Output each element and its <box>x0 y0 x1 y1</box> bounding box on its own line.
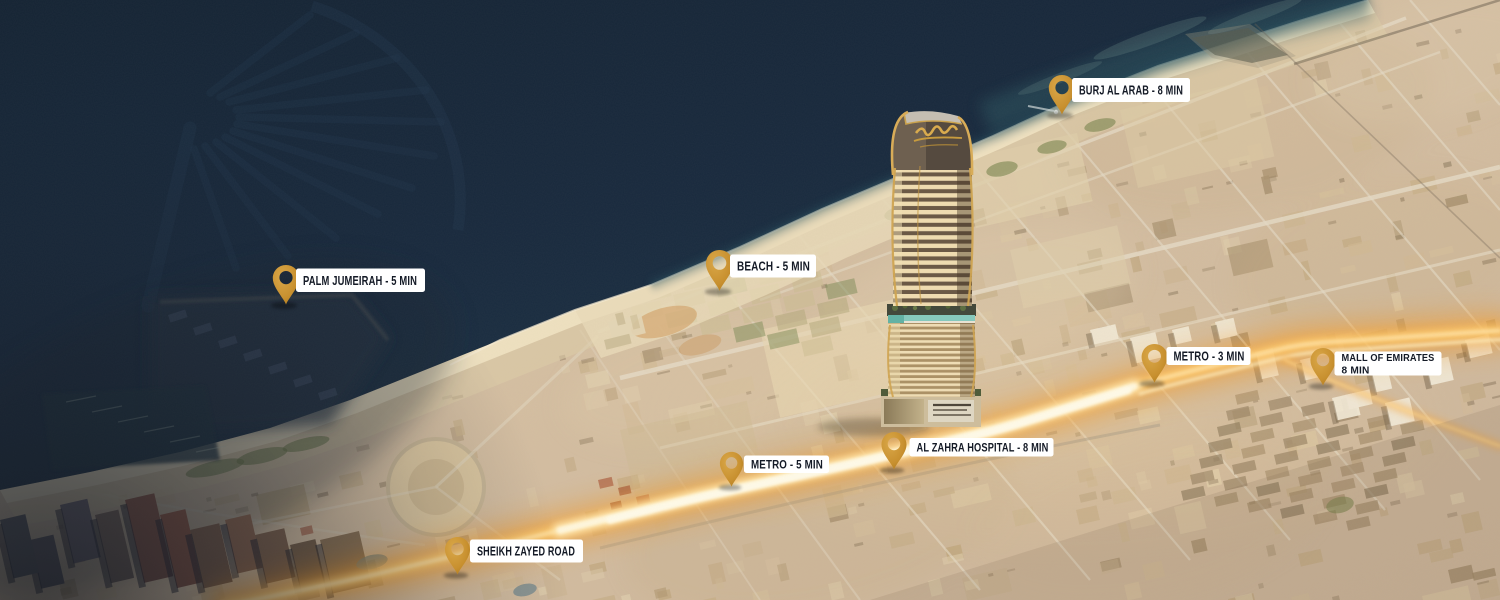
svg-text:AL ZAHRA HOSPITAL - 8 MIN: AL ZAHRA HOSPITAL - 8 MIN <box>917 441 1049 455</box>
svg-text:METRO - 3 MIN: METRO - 3 MIN <box>1174 350 1245 364</box>
svg-text:BEACH - 5 MIN: BEACH - 5 MIN <box>737 260 810 274</box>
svg-text:MALL OF EMIRATES: MALL OF EMIRATES <box>1342 352 1435 364</box>
svg-text:8 MIN: 8 MIN <box>1342 364 1370 376</box>
svg-text:BURJ AL ARAB - 8 MIN: BURJ AL ARAB - 8 MIN <box>1079 84 1183 98</box>
svg-text:METRO - 5 MIN: METRO - 5 MIN <box>751 458 823 472</box>
svg-text:SHEIKH ZAYED ROAD: SHEIKH ZAYED ROAD <box>477 545 575 559</box>
svg-text:PALM JUMEIRAH - 5 MIN: PALM JUMEIRAH - 5 MIN <box>303 274 417 288</box>
